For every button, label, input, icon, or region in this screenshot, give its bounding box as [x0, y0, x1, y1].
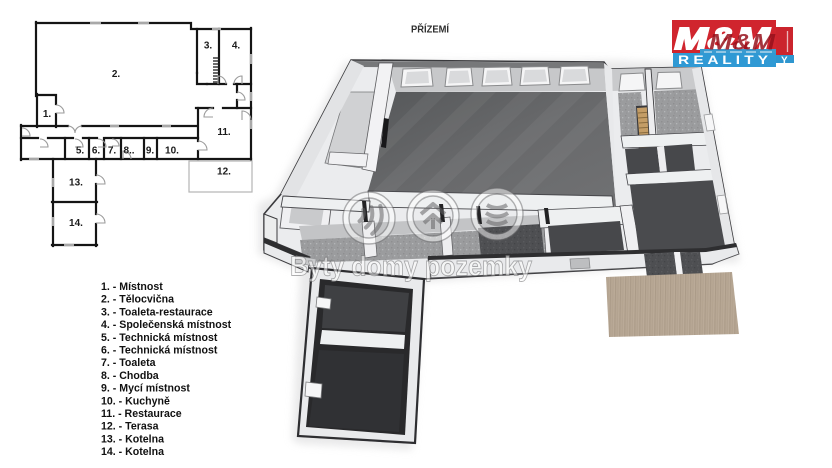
svg-text:6.: 6. — [92, 146, 101, 157]
svg-text:14. - Kotelna: 14. - Kotelna — [101, 446, 164, 458]
svg-text:11.: 11. — [217, 127, 231, 138]
svg-text:10.: 10. — [165, 146, 179, 157]
svg-text:1. - Místnost: 1. - Místnost — [101, 281, 163, 293]
svg-text:10. - Kuchyně: 10. - Kuchyně — [101, 395, 170, 407]
svg-text:8. - Chodba: 8. - Chodba — [101, 370, 159, 382]
svg-text:14.: 14. — [69, 218, 83, 229]
svg-text:4.: 4. — [232, 41, 241, 52]
svg-text:4. - Společenská místnost: 4. - Společenská místnost — [101, 319, 232, 331]
svg-text:12. - Terasa: 12. - Terasa — [101, 421, 159, 433]
svg-text:13.: 13. — [69, 178, 83, 189]
svg-text:Y: Y — [781, 56, 788, 67]
svg-text:12.: 12. — [217, 167, 231, 178]
svg-text:M&M: M&M — [709, 30, 776, 55]
svg-text:7.: 7. — [108, 146, 117, 157]
svg-text:2. - Tělocvična: 2. - Tělocvična — [101, 294, 174, 306]
svg-text:Byty domy pozemky: Byty domy pozemky — [290, 251, 532, 282]
svg-text:7. - Toaleta: 7. - Toaleta — [101, 357, 156, 369]
svg-text:R E A L I T Y: R E A L I T Y — [678, 55, 768, 67]
svg-text:6. - Technická místnost: 6. - Technická místnost — [101, 345, 218, 357]
svg-text:3.: 3. — [204, 41, 213, 52]
svg-text:5.: 5. — [76, 146, 85, 157]
svg-text:3. - Toaleta-restaurace: 3. - Toaleta-restaurace — [101, 306, 213, 318]
svg-text:2.: 2. — [112, 69, 121, 80]
svg-text:5. - Technická místnost: 5. - Technická místnost — [101, 332, 218, 344]
svg-text:11. - Restaurace: 11. - Restaurace — [101, 408, 182, 420]
svg-text:9. - Mycí místnost: 9. - Mycí místnost — [101, 383, 190, 395]
svg-text:13. - Kotelna: 13. - Kotelna — [101, 433, 164, 445]
svg-text:8..: 8.. — [123, 146, 134, 157]
svg-text:PŘÍZEMÍ: PŘÍZEMÍ — [411, 23, 450, 36]
svg-text:1.: 1. — [43, 109, 52, 120]
svg-text:9.: 9. — [146, 146, 155, 157]
